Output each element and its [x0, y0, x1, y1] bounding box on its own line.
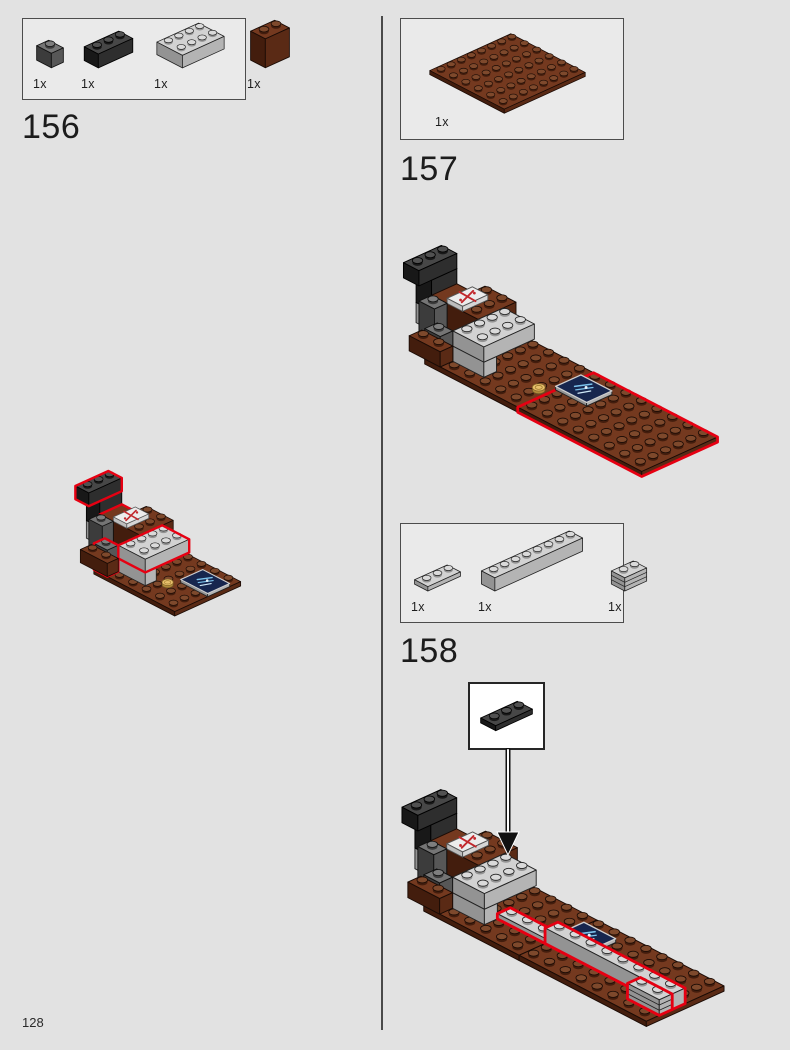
panel-1x2x2-reddish-brown-icon	[247, 17, 293, 71]
step-156-number: 156	[22, 108, 80, 147]
step-156-parts-box: 1x 1x 1x 1x	[22, 18, 246, 100]
assembly-156-image	[72, 468, 244, 619]
brick-2x4-light-gray-icon	[154, 20, 227, 71]
part-count: 1x	[33, 77, 47, 91]
page-number: 128	[22, 1015, 44, 1030]
brick-1x1-dark-gray-icon	[33, 37, 67, 71]
step-158-number: 158	[400, 632, 458, 671]
step-157-number: 157	[400, 150, 458, 189]
column-divider	[381, 16, 383, 1030]
brick-1x2-masonry-light-gray-icon	[608, 558, 650, 594]
part-count: 1x	[608, 600, 622, 614]
step-157-parts-box: 1x	[400, 18, 624, 140]
step-158-callout-box	[468, 682, 545, 750]
plate-6x8-reddish-brown-icon	[427, 31, 588, 116]
part-plate-1x3-light-gray: 1x	[401, 556, 468, 622]
part-count: 1x	[154, 77, 168, 91]
part-brick-1x3-black: 1x	[71, 22, 140, 99]
part-count: 1x	[435, 115, 449, 129]
part-brick-1x2-masonry: 1x	[590, 552, 654, 622]
part-brick-1x1-dark-gray: 1x	[23, 31, 71, 99]
plate-1x3-light-gray-icon	[411, 562, 464, 594]
step-158-parts-box: 1x 1x 1x	[400, 523, 624, 623]
part-count: 1x	[478, 600, 492, 614]
part-brick-2x4-light-gray: 1x	[140, 14, 231, 99]
part-brick-1x8-light-gray: 1x	[468, 522, 590, 622]
assembly-158-image	[398, 786, 728, 1030]
plate-1x3-black-icon	[477, 698, 536, 734]
part-panel-1x2x2-brown: 1x	[231, 11, 297, 99]
part-count: 1x	[411, 600, 425, 614]
part-count: 1x	[81, 77, 95, 91]
part-count: 1x	[247, 77, 261, 91]
brick-1x3-black-icon	[81, 28, 136, 71]
assembly-157-image	[400, 242, 721, 480]
brick-1x8-light-gray-icon	[478, 528, 586, 594]
guide-arrow-icon	[494, 748, 522, 858]
